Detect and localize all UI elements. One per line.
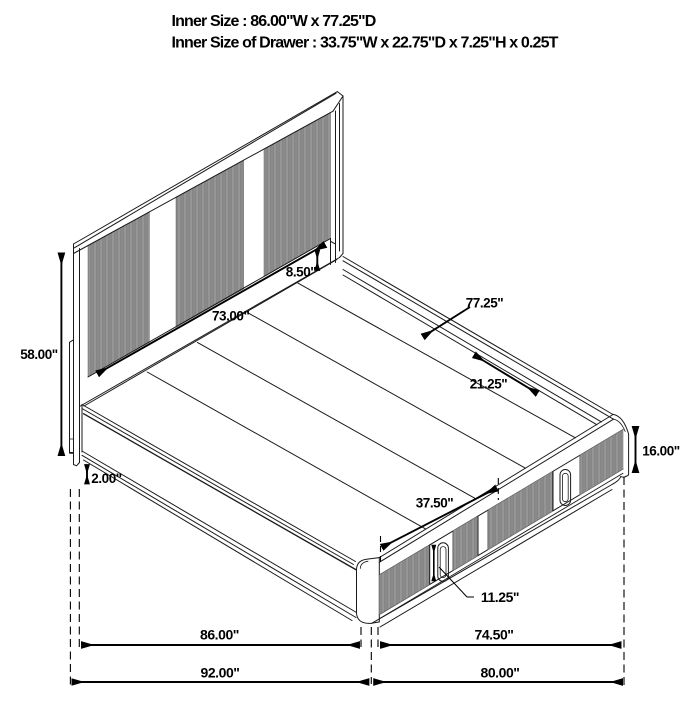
svg-text:8.50": 8.50": [286, 265, 316, 280]
svg-text:86.00": 86.00": [200, 627, 239, 643]
svg-text:Inner Size : 86.00"W x 77.25"D: Inner Size : 86.00"W x 77.25"D: [172, 13, 376, 30]
svg-text:Inner Size of Drawer : 33.75"W: Inner Size of Drawer : 33.75"W x 22.75"D…: [172, 35, 559, 52]
svg-text:80.00": 80.00": [481, 665, 520, 681]
svg-text:74.50": 74.50": [475, 627, 514, 643]
svg-text:73.00": 73.00": [212, 309, 250, 324]
svg-text:77.25": 77.25": [466, 296, 504, 311]
svg-text:37.50": 37.50": [416, 496, 454, 511]
svg-text:16.00": 16.00": [642, 444, 680, 459]
svg-text:92.00": 92.00": [201, 665, 240, 681]
svg-text:58.00": 58.00": [20, 347, 58, 362]
svg-text:2.00": 2.00": [91, 471, 121, 486]
svg-text:21.25": 21.25": [470, 377, 508, 392]
svg-text:11.25": 11.25": [481, 589, 519, 605]
